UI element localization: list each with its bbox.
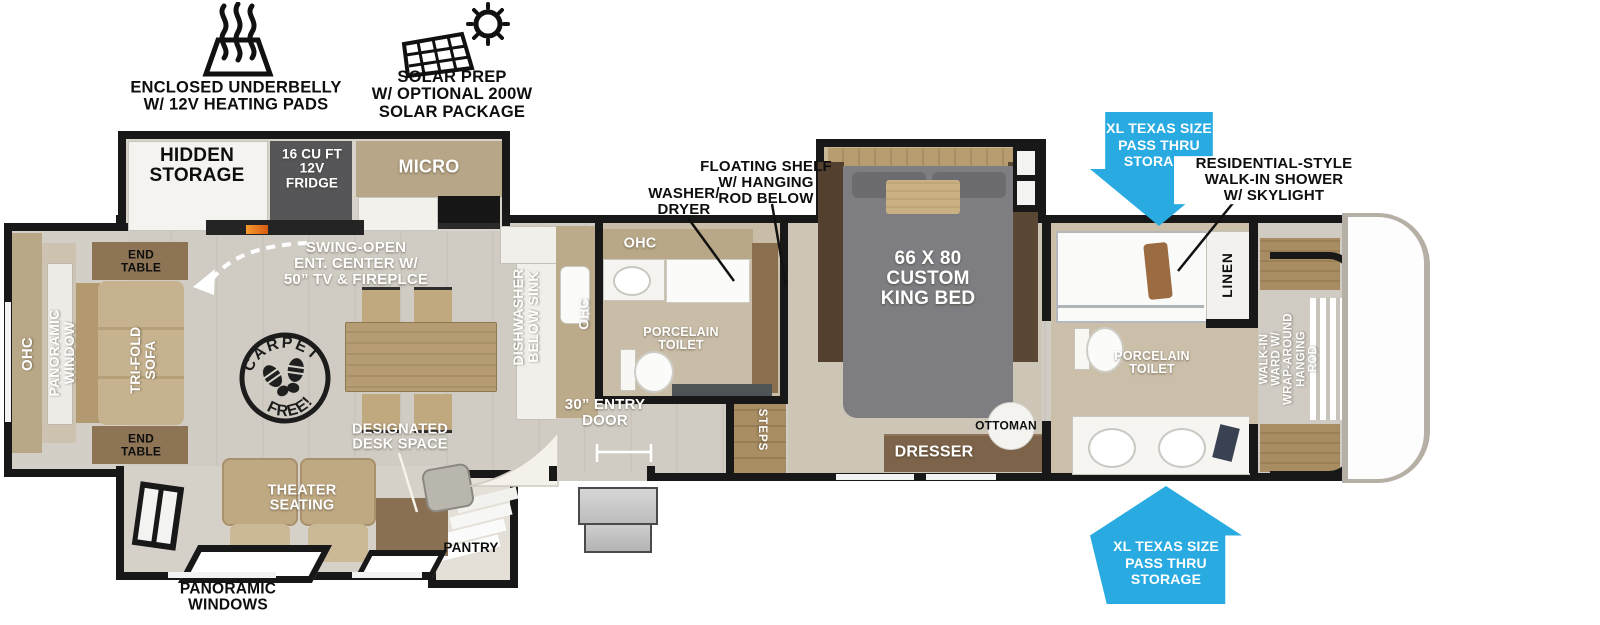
- swing-open-label: SWING-OPEN ENT. CENTER W/ 50” TV & FIREP…: [284, 240, 428, 288]
- shower-callout: RESIDENTIAL-STYLE WALK-IN SHOWER W/ SKYL…: [1174, 156, 1374, 204]
- bedroom-bath-wall: [1042, 223, 1051, 321]
- vanity-sink: [1158, 428, 1206, 468]
- panoramic-window-label: PANORAMIC WINDOW: [47, 309, 77, 396]
- king-bed-label: 66 X 80 CUSTOM KING BED: [881, 249, 976, 309]
- pass-thru-arrow-bottom: XL TEXAS SIZE PASS THRU STORAGE: [1090, 486, 1242, 604]
- dining-chair: [414, 287, 452, 326]
- bedroom-window: [1013, 146, 1039, 212]
- solar-label: SOLAR PREP W/ OPTIONAL 200W SOLAR PACKAG…: [342, 69, 562, 121]
- midbath-wall: [780, 223, 788, 404]
- entry-steps-outside: [578, 487, 658, 525]
- shower-glass-track: [1058, 305, 1204, 308]
- stove: [438, 196, 500, 229]
- steps-wall: [726, 404, 734, 473]
- solar-prep-icon: [396, 2, 512, 78]
- bath-ward-wall: [1249, 223, 1258, 327]
- end-table-bottom-label: END TABLE: [121, 432, 161, 457]
- entertainment-center: [206, 220, 364, 235]
- door-swing: [468, 430, 560, 488]
- entry-door-label: 30” ENTRY DOOR: [565, 397, 645, 429]
- headboard-shelf: [828, 148, 1014, 168]
- door-jamb: [647, 466, 655, 481]
- micro-label: MICRO: [399, 157, 460, 176]
- pantry-label: PANTRY: [443, 541, 498, 555]
- midbath-wall: [595, 223, 603, 404]
- front-cap: [1348, 217, 1424, 479]
- ohc-sofa-label: OHC: [20, 337, 36, 371]
- bath-counter: [672, 384, 772, 396]
- linen-label: LINEN: [1221, 252, 1235, 298]
- vanity-sink: [1088, 428, 1136, 468]
- steps-label: STEPS: [756, 409, 768, 452]
- carpet-free-stamp: CARPET FREE!: [229, 322, 340, 433]
- bed-blanket: [886, 180, 960, 214]
- bath-sink: [613, 266, 651, 296]
- window-slit: [352, 572, 422, 578]
- window-slit: [836, 474, 914, 480]
- door-jamb: [549, 466, 557, 481]
- entry-steps-outside: [584, 523, 652, 553]
- floating-shelf-unit: [752, 243, 778, 393]
- toilet-mid-bowl: [634, 351, 674, 393]
- desk-label: DESIGNATED DESK SPACE: [352, 423, 448, 454]
- kitchen-corner-counter: [500, 226, 562, 264]
- end-table-top-label: END TABLE: [121, 248, 161, 273]
- panoramic-windows-callout: PANORAMIC WINDOWS: [180, 582, 276, 615]
- window-slit: [926, 474, 996, 480]
- sofa-backrest: [76, 283, 100, 423]
- window-frame-rear: [132, 481, 184, 551]
- pass-thru-bottom-label: XL TEXAS SIZE PASS THRU STORAGE: [1090, 538, 1242, 588]
- bedroom-bath-wall: [1042, 421, 1051, 473]
- boot-print-icon: [258, 361, 293, 400]
- window-slit: [168, 572, 276, 578]
- toilet-front-label: PORCELAIN TOILET: [1114, 350, 1189, 377]
- dining-table: [345, 322, 497, 392]
- dining-chair: [362, 287, 400, 326]
- hidden-storage-label: HIDDEN STORAGE: [149, 146, 244, 186]
- fireplace: [246, 225, 268, 234]
- floating-shelf-callout: FLOATING SHELF W/ HANGING ROD BELOW: [700, 159, 832, 207]
- ohc-bath-label: OHC: [624, 236, 657, 251]
- underbelly-label: ENCLOSED UNDERBELLY W/ 12V HEATING PADS: [121, 80, 351, 115]
- fridge-label: 16 CU FT 12V FRIDGE: [282, 148, 342, 191]
- toilet-mid-label: PORCELAIN TOILET: [643, 326, 718, 353]
- bath-ward-wall: [1249, 424, 1258, 473]
- window-slit-left-wall: [5, 302, 11, 422]
- walk-in-ward-label: WALK-IN WARD W/ WRAP-AROUND HANGING ROD: [1259, 269, 1320, 449]
- entry-door-opening: [557, 473, 647, 481]
- trifold-sofa-label: TRI-FOLD SOFA: [128, 327, 158, 394]
- shower: [1056, 231, 1210, 323]
- kitchen-counter: [358, 197, 438, 231]
- theater-label: THEATER SEATING: [268, 484, 337, 515]
- washer-dryer-unit: [666, 259, 750, 303]
- dresser-label: DRESSER: [895, 445, 974, 462]
- ohc-kitchen-label: OHC: [577, 298, 592, 330]
- floorplan-canvas: ENCLOSED UNDERBELLY W/ 12V HEATING PADS …: [0, 0, 1600, 625]
- heating-pads-icon: [190, 2, 286, 82]
- ottoman-label: OTTOMAN: [975, 420, 1037, 433]
- dishwasher-label: DISHWASHER BELOW SINK: [511, 269, 541, 366]
